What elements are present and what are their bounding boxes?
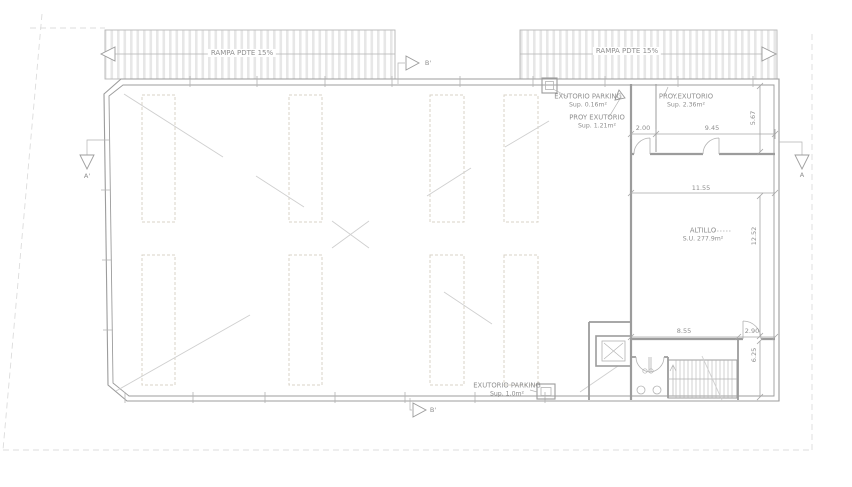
dim-corridor-width: 2.00 (636, 124, 650, 132)
aisle-markings (116, 94, 618, 392)
parking-bays (142, 95, 538, 385)
section-a-right-icon (795, 155, 809, 169)
section-label-a-left: A' (84, 172, 90, 180)
section-b-top-icon (406, 56, 419, 70)
elevator (596, 336, 631, 366)
label-exutorio-parking-top: EXUTORIO PARKING Sup. 0.16m² (554, 94, 622, 109)
dim-right-room-width: 2.90 (745, 327, 759, 335)
doors (634, 138, 761, 394)
floor-plan-drawing (0, 0, 852, 487)
section-label-b-bottom: B' (430, 406, 436, 414)
section-a-left-icon (80, 155, 94, 169)
section-label-a-right: A (800, 171, 804, 179)
ramp-left-label: RAMPA PDTE 15% (208, 49, 276, 57)
dim-altillo-height: 12.52 (750, 227, 758, 246)
building-outline (104, 79, 779, 401)
label-proy-exutorio-parking: PROY EXUTORIO Sup. 1.21m² (569, 115, 625, 130)
smoke-vent-top (542, 78, 557, 93)
ramp-right-label: RAMPA PDTE 15% (593, 47, 661, 55)
label-proy-exutorio-room: PROY.EXUTORIO Sup. 2.36m² (659, 94, 713, 109)
dim-room-height: 5.67 (749, 111, 757, 125)
dim-stair-zone-height: 6.25 (750, 348, 758, 362)
label-exutorio-parking-bottom: EXUTORIO PARKING Sup. 1.0m² (473, 383, 541, 398)
dim-stair-zone-width: 8.55 (677, 327, 691, 335)
section-label-b-top: B' (425, 59, 431, 67)
dim-altillo-width: 11.55 (692, 184, 711, 192)
label-altillo: ALTILLO S.U. 277.9m² (683, 228, 724, 243)
column-ticks (101, 76, 753, 403)
dim-room-width: 9.45 (705, 124, 719, 132)
floor-plan-canvas: RAMPA PDTE 15% RAMPA PDTE 15% EXUTORIO P… (0, 0, 852, 487)
stairs (668, 356, 737, 400)
section-b-bottom-icon (413, 403, 426, 417)
